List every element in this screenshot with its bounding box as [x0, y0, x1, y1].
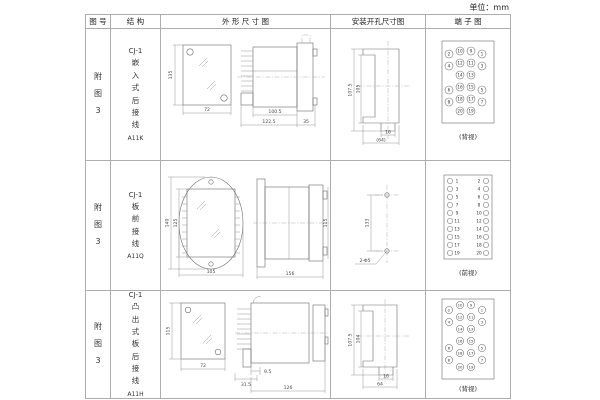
terminal-number: 15 — [469, 338, 474, 343]
row3-fig-no-cell: 附图3 — [86, 291, 111, 399]
terminal-number: 16 — [458, 338, 463, 343]
dim-label: 2-Φ5 — [359, 258, 370, 264]
dim-label: 16 — [383, 374, 389, 380]
side-view-shape — [235, 297, 329, 393]
view-label: (背视) — [459, 384, 477, 393]
terminal-number: 15 — [454, 235, 460, 240]
dim-label: 31.5 — [241, 382, 251, 388]
dim-label: 9.5 — [264, 369, 271, 375]
row1-outline-cell: 135 72 100.5 122.5 35 — [161, 29, 331, 161]
dim-label: 72 — [200, 363, 206, 369]
front-view-shape — [173, 45, 231, 115]
terminal-number: 10 — [458, 302, 463, 307]
terminal-number: 8 — [448, 357, 451, 362]
terminal-number: 3 — [456, 187, 459, 192]
terminal-number: 13 — [454, 227, 460, 232]
terminal-number: 20 — [476, 251, 482, 256]
terminal-number: 4 — [478, 187, 481, 192]
dim-label: 115 — [323, 219, 329, 228]
dim-label: 126 — [284, 385, 293, 391]
terminal-number: 5 — [481, 88, 484, 93]
dim-label: 122.5 — [262, 119, 275, 125]
terminal-number: 1 — [481, 307, 484, 312]
header-fig-no: 图 号 — [86, 15, 111, 29]
install-drawing-row1: 107.5 105 16 (64) — [331, 29, 425, 160]
dim-label: 16 — [385, 130, 391, 136]
row3-outline-cell: 115 72 9.5 31.5 126 — [161, 291, 331, 399]
terminal-drawing-row3: 2 10 9 1 4 12 11 3 14 13 6 16 15 5 8 18 — [426, 291, 510, 398]
header-terminal: 端 子 图 — [426, 15, 511, 29]
row2-structure-cell: CJ-1 板前接线 A11Q — [111, 161, 161, 291]
row1-fig-no-cell: 附图3 — [86, 29, 111, 161]
terminal-number: 15 — [468, 85, 474, 90]
terminal-number: 19 — [454, 251, 460, 256]
structure-desc: 凸出式板后接线 — [131, 301, 140, 388]
terminal-number: 7 — [456, 203, 459, 208]
row2-terminal-cell: 1 2 3 4 5 6 7 8 9 10 11 12 13 14 15 16 1 — [426, 161, 511, 291]
dim-label: 107.5 — [348, 83, 354, 96]
dim-label: 115 — [166, 327, 172, 336]
front-view-shape — [169, 303, 225, 371]
terminal-number: 1 — [456, 179, 459, 184]
terminal-pins: 2 10 9 1 4 12 11 3 14 13 6 16 15 5 8 18 — [445, 301, 485, 370]
dim-label: 156 — [286, 271, 295, 277]
row2-fig-no-cell: 附图3 — [86, 161, 111, 291]
dim-label: 105 — [356, 85, 362, 94]
terminal-number: 6 — [448, 88, 451, 93]
terminal-number: 4 — [448, 64, 451, 69]
terminal-number: 20 — [458, 364, 463, 369]
row2-outline-cell: 140 125 105 156 115 — [161, 161, 331, 291]
row2-install-cell: 133 2-Φ5 — [331, 161, 426, 291]
terminal-number: 5 — [456, 195, 459, 200]
structure-code: A11Q — [127, 253, 143, 260]
terminal-number: 5 — [481, 345, 484, 350]
terminal-number: 11 — [468, 61, 474, 66]
row3-install-cell: 107.5 104 16 64 — [331, 291, 426, 399]
terminal-number: 14 — [457, 73, 463, 78]
structure-desc: 板前接线 — [131, 201, 140, 251]
dim-label: 35 — [303, 119, 309, 125]
dim-label: 133 — [365, 219, 371, 228]
header-structure: 结 构 — [111, 15, 161, 29]
terminal-number: 2 — [448, 307, 451, 312]
terminal-number: 4 — [448, 319, 451, 324]
document-page: 单位：mm 图 号 结 构 外 形 尺 寸 图 安装开孔尺寸图 端 子 图 附图… — [0, 0, 600, 400]
terminal-number: 16 — [457, 85, 463, 90]
terminal-number: 18 — [457, 97, 463, 102]
terminal-pins: 1 2 3 4 5 6 7 8 9 10 11 12 13 14 15 16 1 — [447, 178, 488, 255]
view-label: (前视) — [459, 268, 477, 277]
terminal-number: 2 — [478, 179, 481, 184]
terminal-number: 9 — [470, 49, 473, 54]
terminal-number: 3 — [481, 64, 484, 69]
dim-label: 72 — [204, 107, 210, 113]
terminal-number: 19 — [469, 364, 474, 369]
outline-drawing-row2: 140 125 105 156 115 — [161, 161, 330, 290]
terminal-number: 19 — [468, 109, 474, 114]
row1-install-cell: 107.5 105 16 (64) — [331, 29, 426, 161]
structure-model: CJ-1 — [129, 47, 143, 55]
row1-terminal-cell: 2 10 9 1 4 12 11 3 14 13 6 16 15 5 8 18 — [426, 29, 511, 161]
terminal-number: 10 — [476, 211, 482, 216]
structure-model: CJ-1 — [129, 291, 143, 299]
structure-code: A11K — [128, 135, 144, 142]
terminal-number: 7 — [481, 100, 484, 105]
terminal-number: 12 — [457, 61, 463, 66]
terminal-number: 9 — [456, 211, 459, 216]
unit-label: 单位：mm — [85, 2, 531, 13]
terminal-number: 7 — [481, 357, 484, 362]
terminal-number: 12 — [476, 219, 482, 224]
terminal-number: 17 — [469, 350, 474, 355]
dim-label: 107.5 — [348, 333, 354, 346]
header-outline: 外 形 尺 寸 图 — [161, 15, 331, 29]
terminal-number: 10 — [457, 49, 463, 54]
terminal-pins: 2 10 9 1 4 12 11 3 14 13 6 16 15 5 8 18 — [445, 47, 486, 115]
outline-drawing-row3: 115 72 9.5 31.5 126 — [161, 291, 330, 398]
terminal-number: 14 — [458, 326, 463, 331]
row3-terminal-cell: 2 10 9 1 4 12 11 3 14 13 6 16 15 5 8 18 — [426, 291, 511, 399]
install-drawing-row2: 133 2-Φ5 — [331, 161, 425, 290]
dim-label: 140 — [165, 219, 171, 228]
terminal-number: 2 — [448, 52, 451, 57]
fig-no-label: 附图3 — [93, 200, 103, 250]
terminal-number: 12 — [458, 314, 463, 319]
terminal-number: 17 — [454, 243, 460, 248]
dim-label: (64) — [376, 138, 386, 144]
terminal-number: 11 — [469, 314, 474, 319]
terminal-number: 6 — [478, 195, 481, 200]
terminal-number: 18 — [476, 243, 482, 248]
dim-label: 135 — [168, 71, 174, 80]
spec-table: 图 号 结 构 外 形 尺 寸 图 安装开孔尺寸图 端 子 图 附图3 CJ-1… — [85, 14, 511, 399]
dim-label: 125 — [173, 219, 179, 228]
structure-model: CJ-1 — [129, 191, 143, 199]
terminal-number: 17 — [468, 97, 474, 102]
terminal-number: 11 — [454, 219, 460, 224]
dim-label: 105 — [207, 269, 216, 275]
terminal-number: 9 — [470, 302, 473, 307]
terminal-number: 1 — [481, 52, 484, 57]
header-install: 安装开孔尺寸图 — [331, 15, 426, 29]
dim-label: 100.5 — [268, 109, 281, 115]
outline-drawing-row1: 135 72 100.5 122.5 35 — [161, 29, 330, 160]
row3-structure-cell: CJ-1 凸出式板后接线 A11H — [111, 291, 161, 399]
terminal-number: 8 — [478, 203, 481, 208]
structure-desc: 嵌入式后接线 — [131, 57, 140, 131]
terminal-number: 16 — [476, 235, 482, 240]
terminal-number: 13 — [469, 326, 474, 331]
terminal-number: 3 — [481, 319, 484, 324]
terminal-number: 6 — [448, 345, 451, 350]
row1-structure-cell: CJ-1 嵌入式后接线 A11K — [111, 29, 161, 161]
terminal-drawing-row2: 1 2 3 4 5 6 7 8 9 10 11 12 13 14 15 16 1 — [426, 161, 510, 290]
hole-layout-shape — [355, 185, 399, 264]
terminal-number: 8 — [448, 100, 451, 105]
terminal-number: 14 — [476, 227, 482, 232]
structure-code: A11H — [127, 391, 143, 398]
dim-label: 104 — [355, 335, 361, 344]
install-drawing-row3: 107.5 104 16 64 — [331, 291, 425, 398]
fig-no-label: 附图3 — [93, 319, 103, 369]
terminal-number: 20 — [457, 109, 463, 114]
fig-no-label: 附图3 — [93, 69, 103, 119]
terminal-number: 18 — [458, 350, 463, 355]
terminal-drawing-row1: 2 10 9 1 4 12 11 3 14 13 6 16 15 5 8 18 — [426, 29, 510, 160]
terminal-number: 13 — [468, 73, 474, 78]
view-label: (背视) — [459, 132, 477, 141]
front-view-shape — [168, 177, 243, 277]
side-view-shape — [253, 179, 329, 279]
dim-label: 64 — [377, 382, 383, 388]
terminal-outline — [444, 175, 492, 259]
